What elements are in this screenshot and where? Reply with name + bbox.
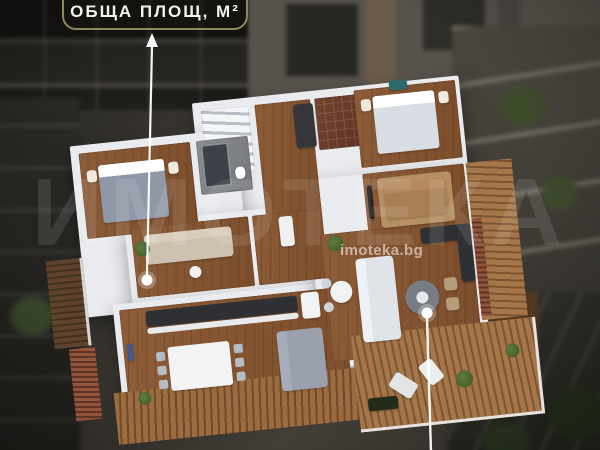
listing-render: ИМОТЕКА imoteka.bg ОБЩА ПЛОЩ, М²: [0, 0, 600, 450]
rattan-chair: [443, 277, 457, 291]
fridge: [300, 291, 321, 319]
shower: [200, 142, 232, 189]
chair: [236, 371, 246, 381]
total-area-label: ОБЩА ПЛОЩ, М²: [64, 2, 246, 22]
bed: [98, 159, 170, 224]
brown-sofa: [383, 177, 448, 219]
chair: [235, 357, 245, 367]
nightstand: [168, 161, 179, 174]
nightstand: [438, 91, 449, 104]
total-area-label-box: ОБЩА ПЛОЩ, М²: [62, 0, 248, 30]
dining-table: [167, 341, 233, 391]
bed: [372, 90, 440, 154]
chair: [156, 352, 166, 362]
hall-cabinet: [278, 216, 295, 247]
chair: [159, 379, 169, 389]
floor-plan: [54, 66, 526, 440]
gray-sofa: [276, 327, 328, 391]
toilet: [235, 166, 246, 179]
nightstand: [360, 99, 371, 112]
nightstand: [86, 170, 97, 183]
rattan-chair: [446, 297, 460, 311]
chair: [233, 343, 243, 353]
wall-art: [389, 79, 408, 91]
chair: [157, 366, 167, 376]
